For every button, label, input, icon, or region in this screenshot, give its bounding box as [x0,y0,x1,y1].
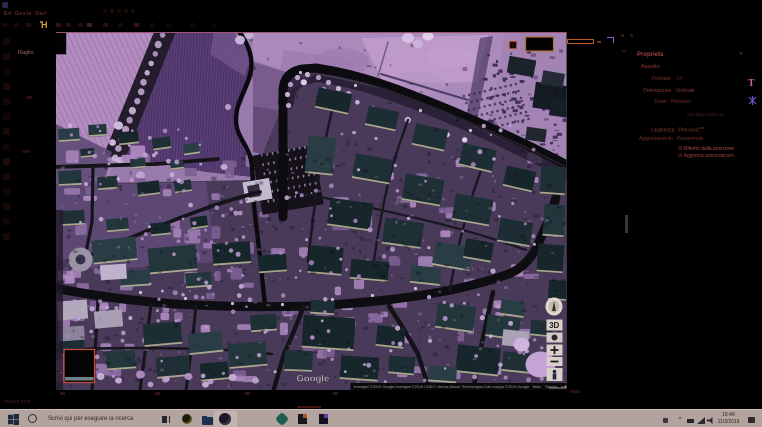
svg-text:Google: Google [296,373,329,384]
svg-text:3D: 3D [549,321,559,330]
svg-text:Immagini ©2019 Google,Immagini: Immagini ©2019 Google,Immagini ©2019 CNE… [353,385,567,389]
